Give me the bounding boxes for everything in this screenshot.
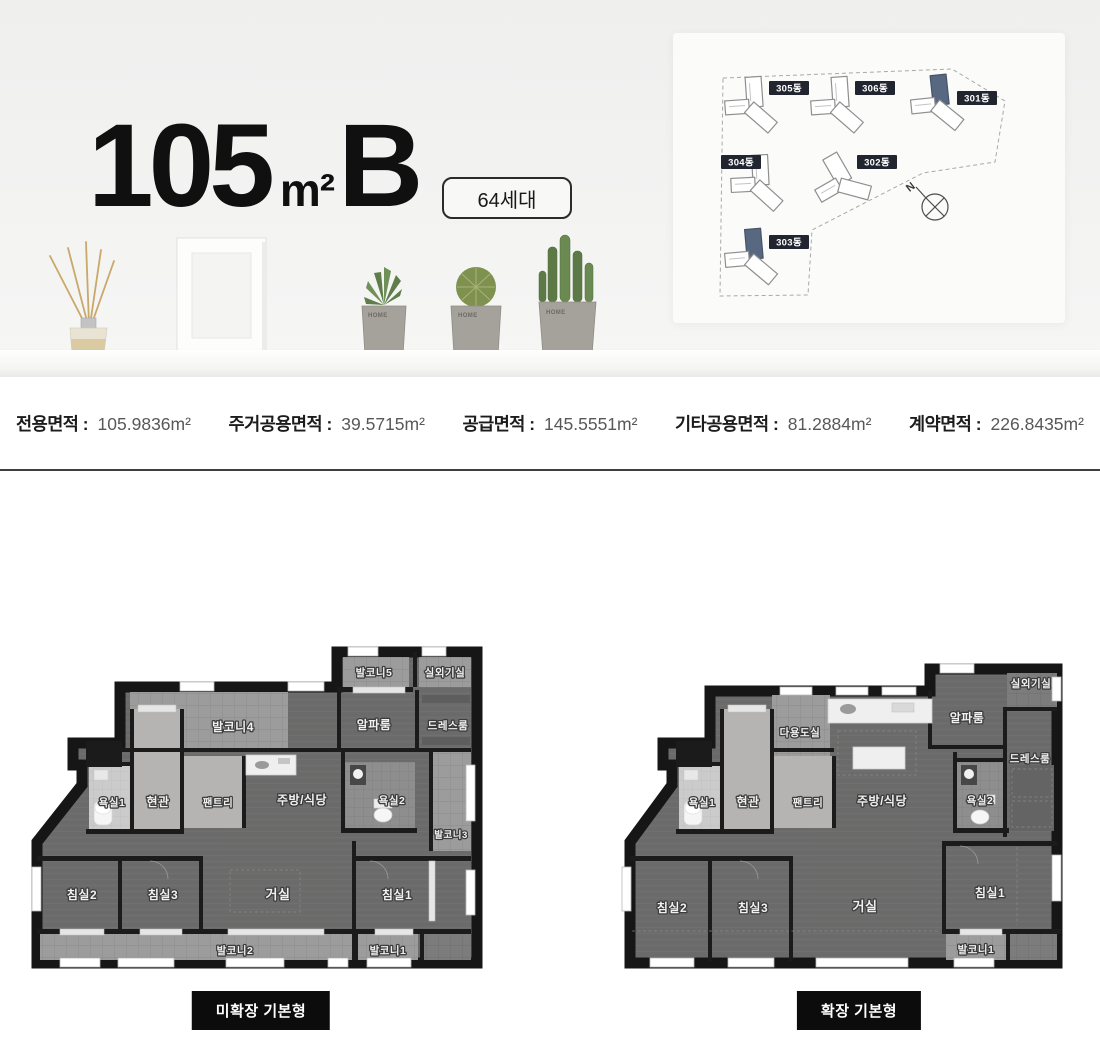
floor-plan-expanded: 실외기실 다용도실 알파룸 드레스룸 욕실1 현관 팬트리 주방/식당 욕실2 … [620,645,1100,985]
area-item-residential-common: 주거공용면적 : 39.5715m² [229,411,425,436]
diffuser-decor [50,242,114,353]
room-label-bed1: 침실1 [975,885,1005,900]
floor-plans-section: 발코니5 실외기실 발코니4 알파룸 드레스룸 욕실1 현관 팬트리 주방/식당… [0,471,1100,1050]
building-304: 304동 [721,154,783,214]
room-label-balcony1: 발코니1 [370,944,407,957]
building-label-305: 305동 [776,84,802,95]
building-label-301: 301동 [964,94,990,105]
compass-north-label: N [904,180,918,194]
room-label-utility: 다용도실 [780,726,821,739]
room-label-balcony3: 발코니3 [434,829,468,841]
building-label-306: 306동 [862,84,888,95]
pot-home-label: HOME [368,313,388,319]
room-label-bed2: 침실2 [67,887,97,902]
room-label-pantry: 팬트리 [203,796,233,809]
room-label-bath2: 욕실2 [967,794,994,807]
succulent-pot-decor: HOME [362,267,406,355]
building-label-304: 304동 [728,158,754,169]
site-map-card: 305동 306동 [673,33,1065,323]
floor-plan-non-expanded: 발코니5 실외기실 발코니4 알파룸 드레스룸 욕실1 현관 팬트리 주방/식당… [30,645,510,985]
area-value: 226.8435m² [991,414,1084,434]
room-label-balcony1: 발코니1 [958,943,995,956]
area-value: 81.2884m² [788,414,872,434]
site-map: 305동 306동 [673,33,1065,323]
tall-cactus-pot-decor: HOME [539,235,596,355]
room-label-balcony2: 발코니2 [217,944,254,957]
room-label-bed1: 침실1 [382,887,412,902]
building-label-303: 303동 [776,238,802,249]
room-label-bath2: 욕실2 [379,794,406,807]
room-label-bed3: 침실3 [738,900,768,915]
title-type: B [338,100,418,232]
plan-caption-expanded: 확장 기본형 [797,991,921,1030]
area-item-contract: 계약면적 : 226.8435m² [909,411,1084,436]
room-label-entrance: 현관 [146,794,169,809]
building-302: 302동 [804,146,897,221]
room-label-bed2: 침실2 [657,900,687,915]
building-303: 303동 [723,227,809,288]
building-306: 306동 [809,75,895,135]
room-label-outdoor-unit: 실외기실 [425,666,466,679]
household-count-label: 64세대 [477,184,536,213]
room-label-outdoor-unit: 실외기실 [1011,677,1052,690]
room-label-bed3: 침실3 [148,887,178,902]
household-count-badge: 64세대 [442,177,572,219]
area-label: 전용면적 : [16,414,88,434]
room-label-alpha: 알파룸 [950,710,985,725]
pot-home-label: HOME [546,310,566,316]
area-item-other-common: 기타공용면적 : 81.2884m² [675,411,871,436]
picture-frame-decor [177,238,266,355]
area-item-supply: 공급면적 : 145.5551m² [463,411,638,436]
room-label-alpha: 알파룸 [357,717,392,732]
area-value: 145.5551m² [544,414,637,434]
area-label: 주거공용면적 : [229,414,332,434]
hero-section: 105m²B 64세대 [0,0,1100,377]
plan-caption-non-expanded: 미확장 기본형 [192,991,330,1030]
room-label-bath1: 욕실1 [99,796,126,809]
room-label-kitchen: 주방/식당 [277,792,327,807]
room-label-living: 거실 [266,887,291,902]
shelf-board [0,350,1100,377]
room-label-living: 거실 [853,899,878,914]
room-label-dress: 드레스룸 [1010,752,1051,765]
room-label-dress: 드레스룸 [428,719,469,732]
building-305: 305동 [723,75,809,135]
building-301: 301동 [908,73,997,135]
room-label-kitchen: 주방/식당 [857,793,907,808]
area-info-row: 전용면적 : 105.9836m² 주거공용면적 : 39.5715m² 공급면… [0,377,1100,471]
pot-home-label: HOME [458,313,478,319]
area-label: 공급면적 : [463,414,535,434]
cactus-ball-pot-decor: HOME [451,267,501,355]
room-label-entrance: 현관 [736,794,759,809]
area-value: 105.9836m² [98,414,191,434]
compass-icon: N [904,180,948,220]
title-unit: m² [280,164,334,216]
room-label-balcony4: 발코니4 [212,719,254,734]
page-title: 105m²B [88,98,418,234]
area-label: 기타공용면적 : [675,414,778,434]
title-size: 105 [88,100,270,232]
area-item-exclusive: 전용면적 : 105.9836m² [16,411,191,436]
building-label-302: 302동 [864,158,890,169]
room-label-pantry: 팬트리 [793,796,823,809]
room-label-bath1: 욕실1 [689,796,716,809]
floorplan-page: 105m²B 64세대 [0,0,1100,1050]
area-label: 계약면적 : [909,414,981,434]
room-label-balcony5: 발코니5 [356,666,393,679]
area-value: 39.5715m² [341,414,425,434]
